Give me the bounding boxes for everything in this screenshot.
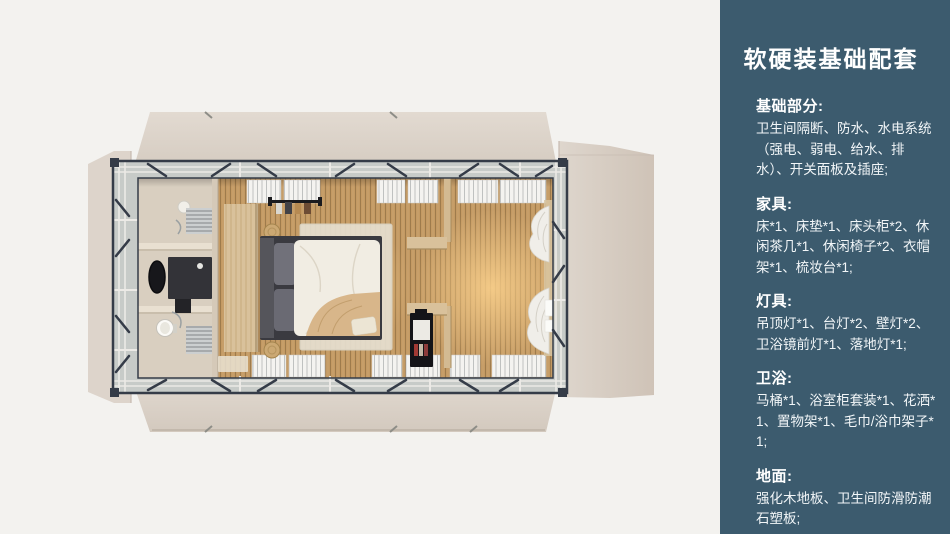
pillow — [274, 289, 296, 331]
info-sidebar: 软硬装基础配套 基础部分: 卫生间隔断、防水、水电系统（强电、弱电、给水、排水）… — [720, 0, 950, 534]
floorplan-render — [0, 0, 720, 534]
floor-mat — [218, 356, 248, 372]
section-sanitary-heading: 卫浴: — [756, 369, 938, 388]
section-flooring: 地面: 强化木地板、卫生间防滑防潮石塑板; — [756, 467, 938, 530]
vanity-mirror — [149, 261, 165, 293]
sidebar-sections: 基础部分: 卫生间隔断、防水、水电系统（强电、弱电、给水、排水）、开关面板及插座… — [756, 97, 938, 530]
section-furniture-heading: 家具: — [756, 195, 938, 214]
section-basics-body: 卫生间隔断、防水、水电系统（强电、弱电、给水、排水）、开关面板及插座; — [756, 119, 938, 181]
section-sanitary-body: 马桶*1、浴室柜套装*1、花洒*1、置物架*1、毛巾/浴巾架子*1; — [756, 391, 938, 453]
vanity-stool — [175, 299, 191, 313]
section-flooring-heading: 地面: — [756, 467, 938, 486]
page: 软硬装基础配套 基础部分: 卫生间隔断、防水、水电系统（强电、弱电、给水、排水）… — [0, 0, 950, 534]
sidebar-title: 软硬装基础配套 — [740, 44, 922, 74]
section-furniture: 家具: 床*1、床垫*1、床头柜*2、休闲茶几*1、休闲椅子*2、衣帽架*1、梳… — [756, 195, 938, 279]
towel-radiator — [186, 208, 212, 234]
section-lighting-body: 吊顶灯*1、台灯*2、壁灯*2、卫浴镜前灯*1、落地灯*1; — [756, 314, 938, 355]
towel-radiator — [186, 326, 212, 354]
foot-cushion — [351, 316, 377, 335]
bathroom-partition — [138, 243, 212, 249]
section-sanitary: 卫浴: 马桶*1、浴室柜套装*1、花洒*1、置物架*1、毛巾/浴巾架子*1; — [756, 369, 938, 453]
storage-cabinet — [410, 309, 433, 367]
section-basics: 基础部分: 卫生间隔断、防水、水电系统（强电、弱电、给水、排水）、开关面板及插座… — [756, 97, 938, 181]
pillow — [274, 243, 296, 285]
section-flooring-body: 强化木地板、卫生间防滑防潮石塑板; — [756, 489, 938, 530]
floorplan-panel — [0, 0, 720, 534]
section-furniture-body: 床*1、床垫*1、床头柜*2、休闲茶几*1、休闲椅子*2、衣帽架*1、梳妆台*1… — [756, 217, 938, 279]
section-basics-heading: 基础部分: — [756, 97, 938, 116]
section-lighting: 灯具: 吊顶灯*1、台灯*2、壁灯*2、卫浴镜前灯*1、落地灯*1; — [756, 292, 938, 355]
bed — [260, 224, 392, 350]
section-lighting-heading: 灯具: — [756, 292, 938, 311]
bed-headboard — [260, 238, 274, 338]
headboard-panel — [224, 204, 260, 352]
towels — [545, 300, 553, 316]
